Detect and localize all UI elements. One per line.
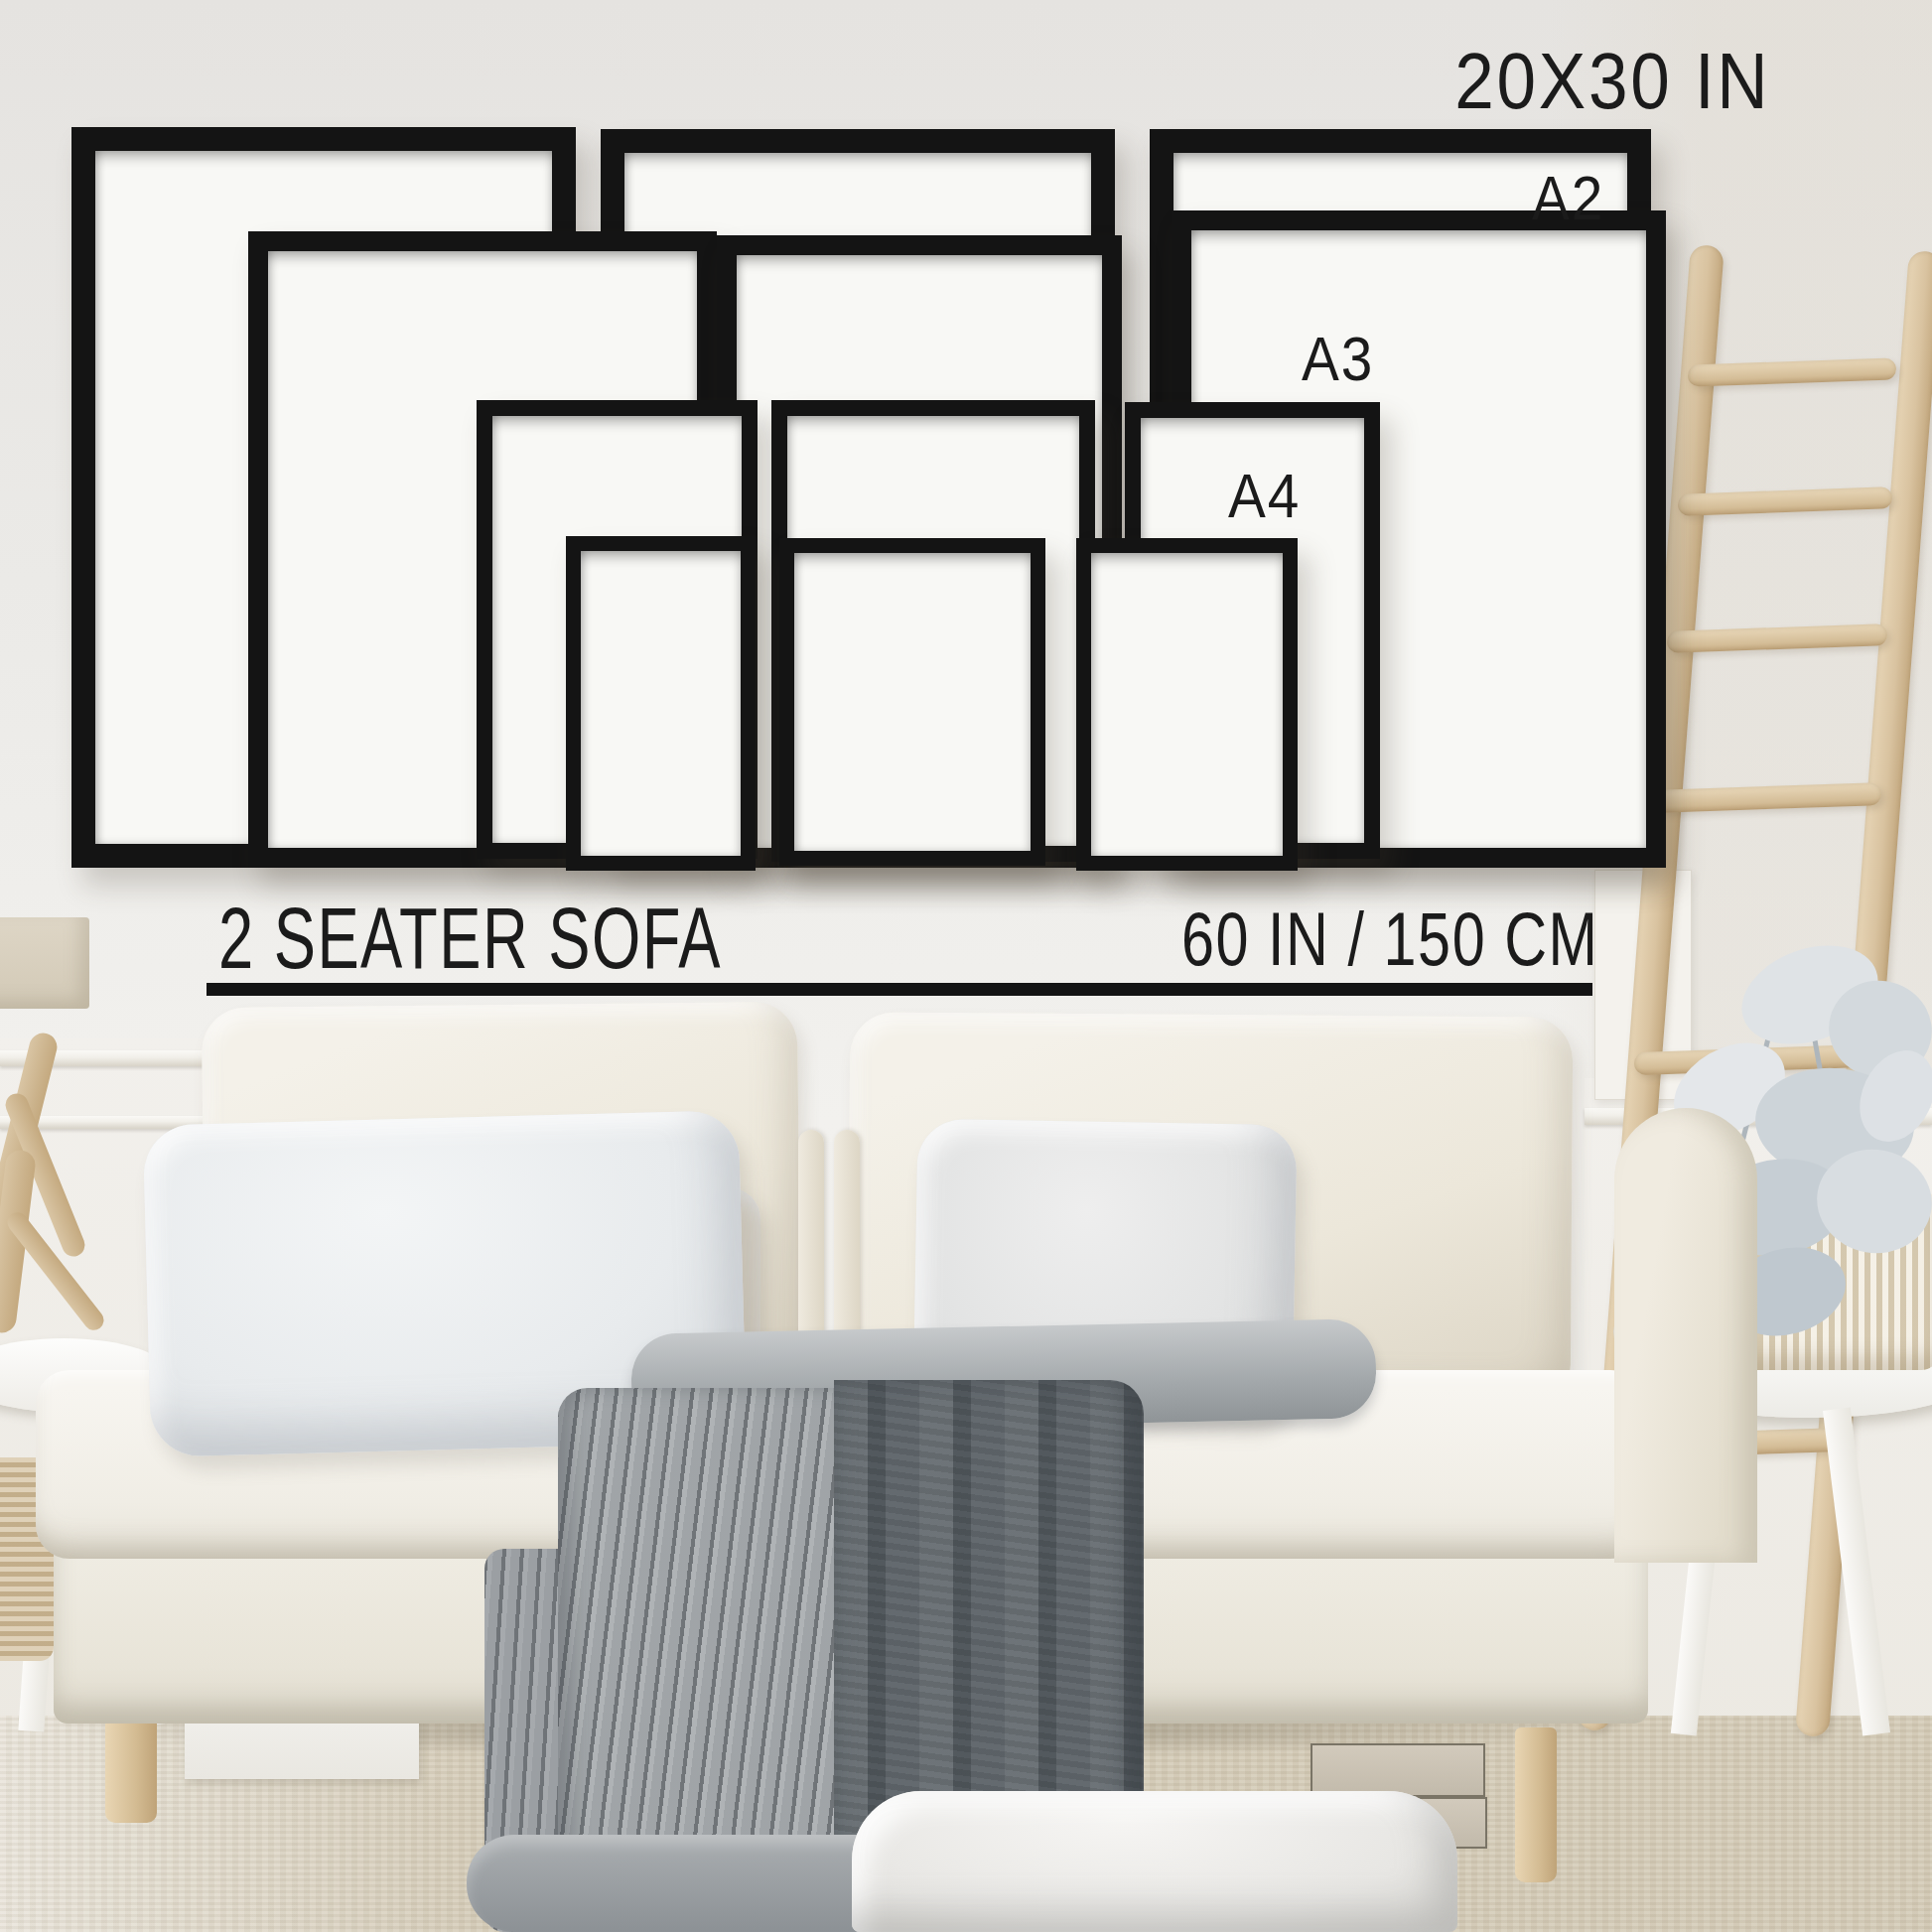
frame-right-a4 (1076, 538, 1298, 871)
label-width: 60 IN / 150 CM (1181, 901, 1717, 977)
label-sofa: 2 SEATER SOFA (218, 895, 917, 982)
lamp-shade (0, 917, 89, 1009)
size-guide-mockup: 20X30 INA2A3A42 SEATER SOFA60 IN / 150 C… (0, 0, 1932, 1932)
label-20x30: 20X30 IN (1420, 42, 1770, 120)
sofa-arm-right (1614, 1108, 1757, 1563)
sofa-back-piping (798, 1130, 824, 1363)
frame-left-a4 (566, 536, 756, 871)
frame-center-a4 (779, 538, 1045, 866)
sofa-width-ruler-line (207, 983, 1592, 996)
label-a2: A2 (1524, 167, 1604, 229)
sofa-leg-right (1515, 1727, 1557, 1882)
label-a3: A3 (1294, 328, 1374, 390)
label-a4: A4 (1220, 465, 1301, 527)
sofa-back-piping (834, 1130, 860, 1363)
storage-box-right-top (1311, 1743, 1485, 1797)
floor-pillow (852, 1791, 1457, 1932)
